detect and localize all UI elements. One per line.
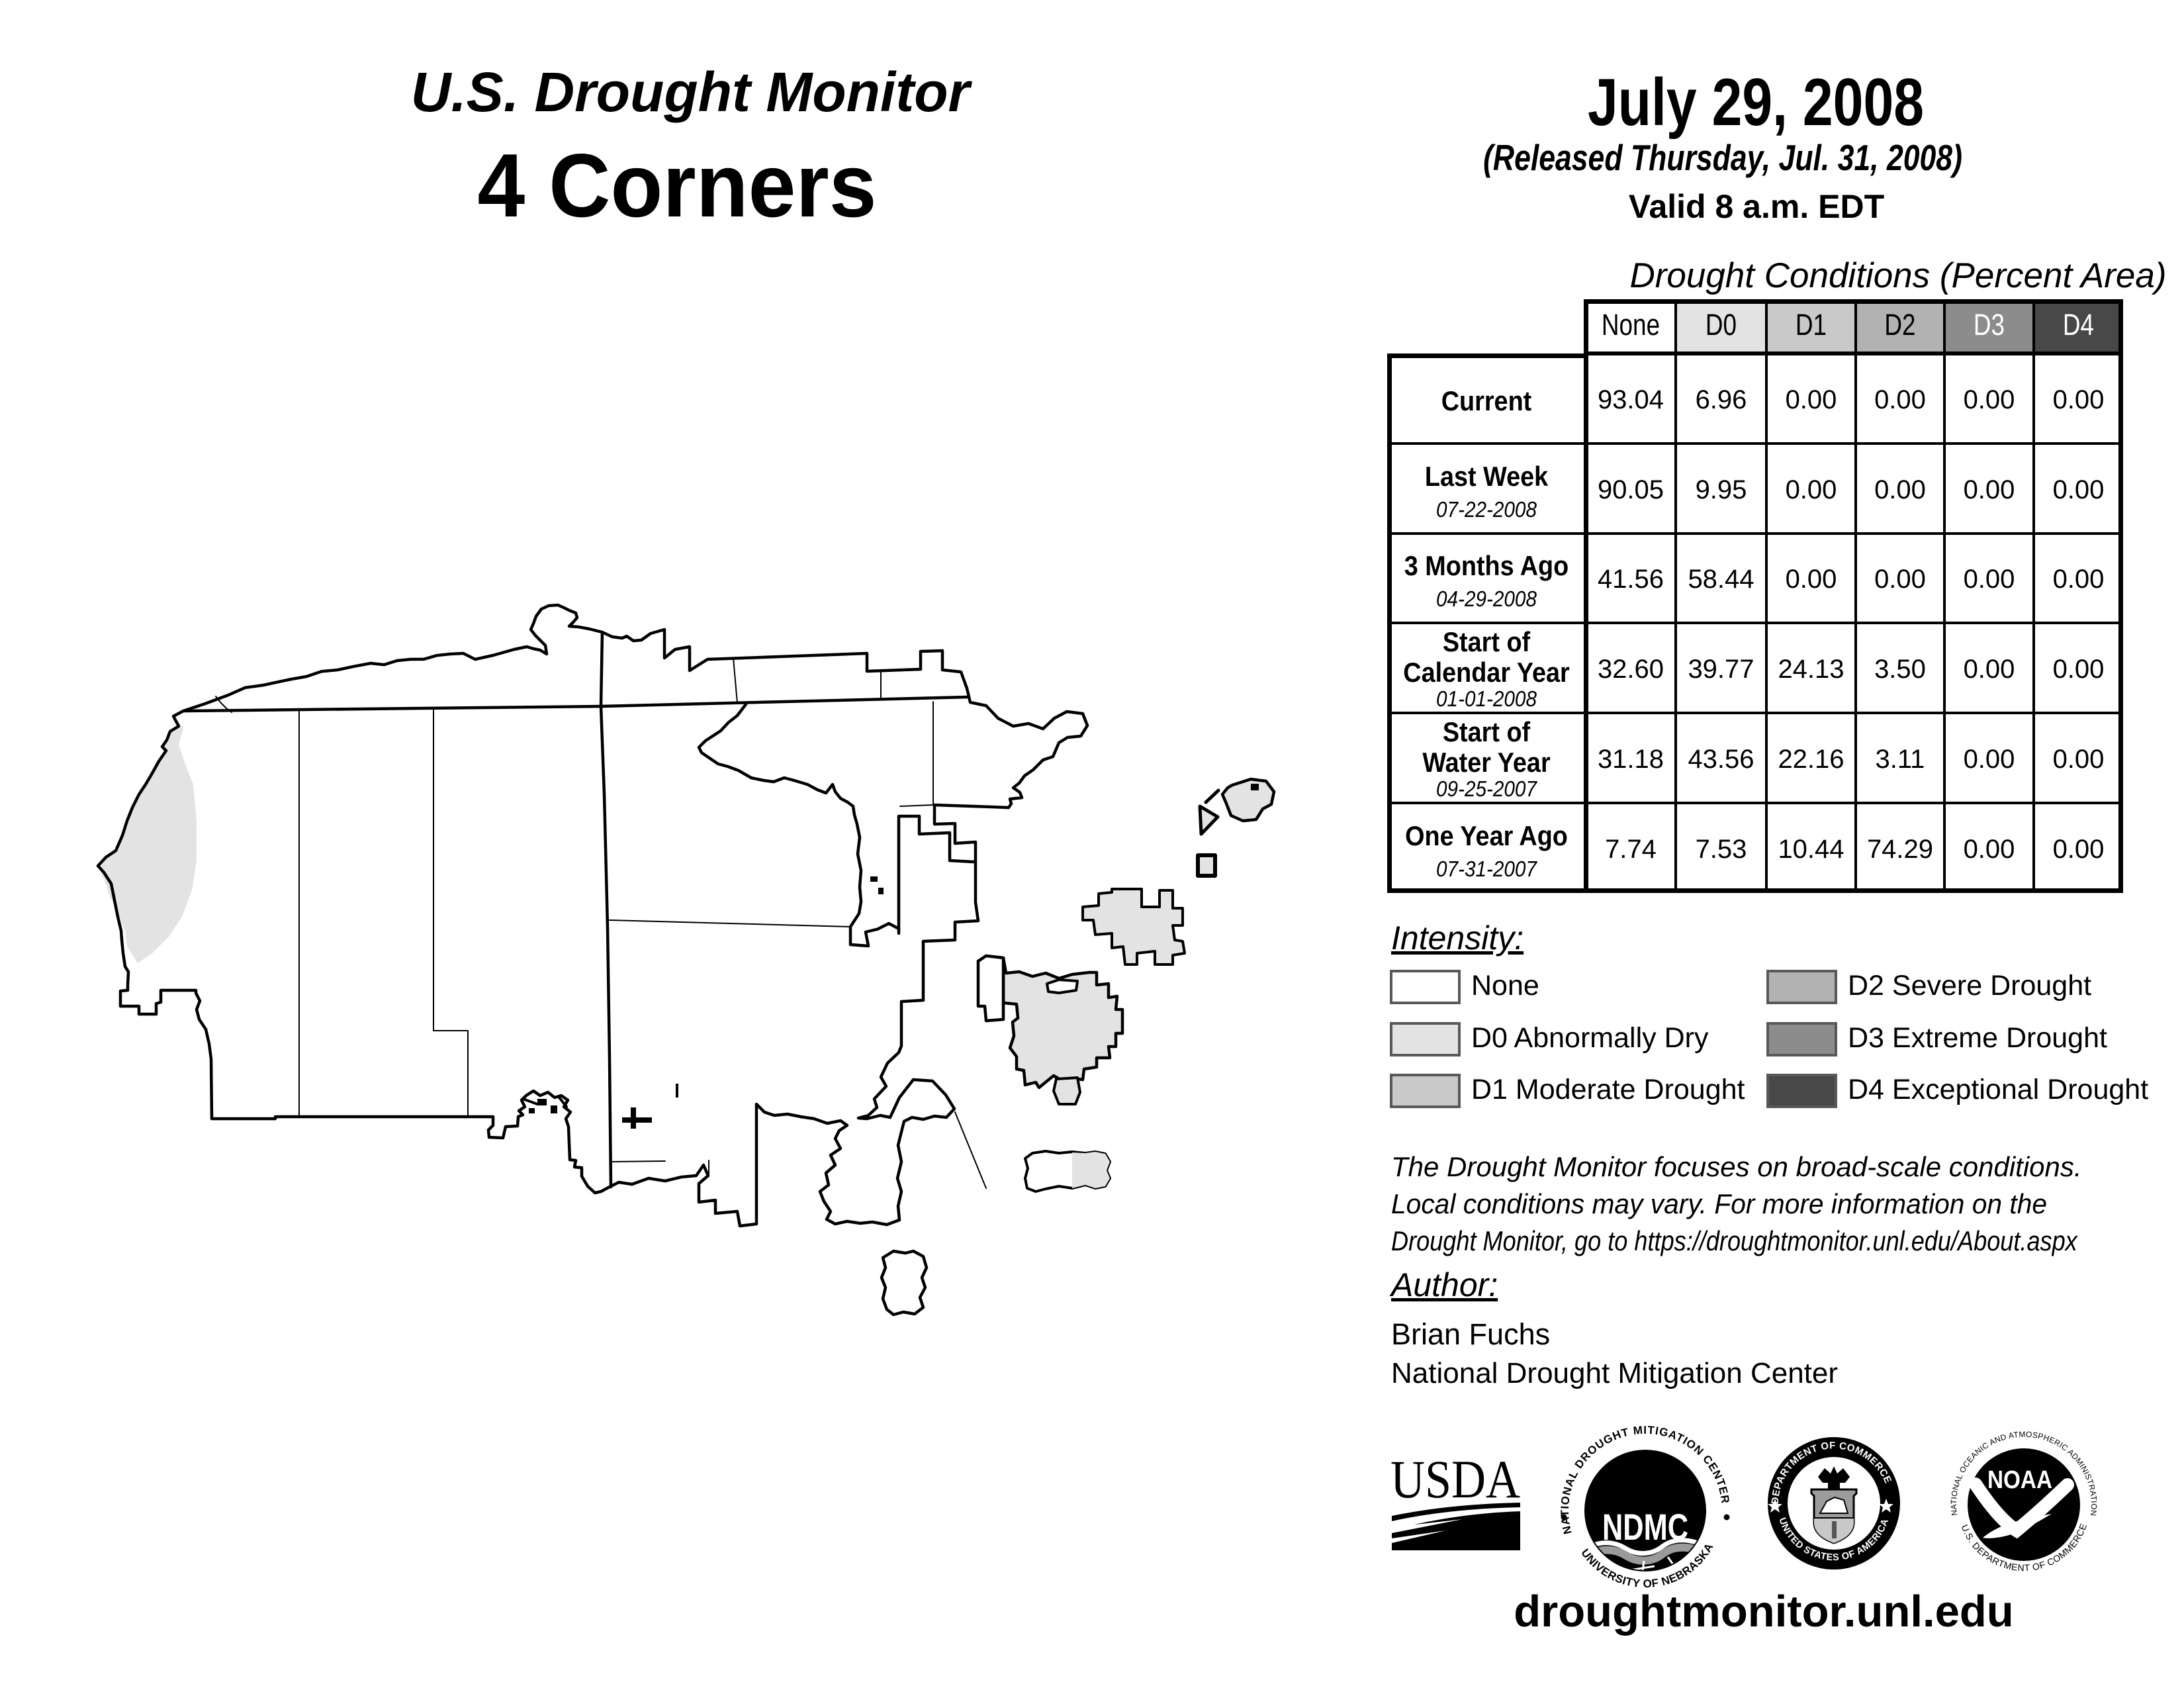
svg-text:USDA: USDA [1390, 1449, 1520, 1509]
svg-text:NOAA: NOAA [1987, 1466, 2052, 1494]
